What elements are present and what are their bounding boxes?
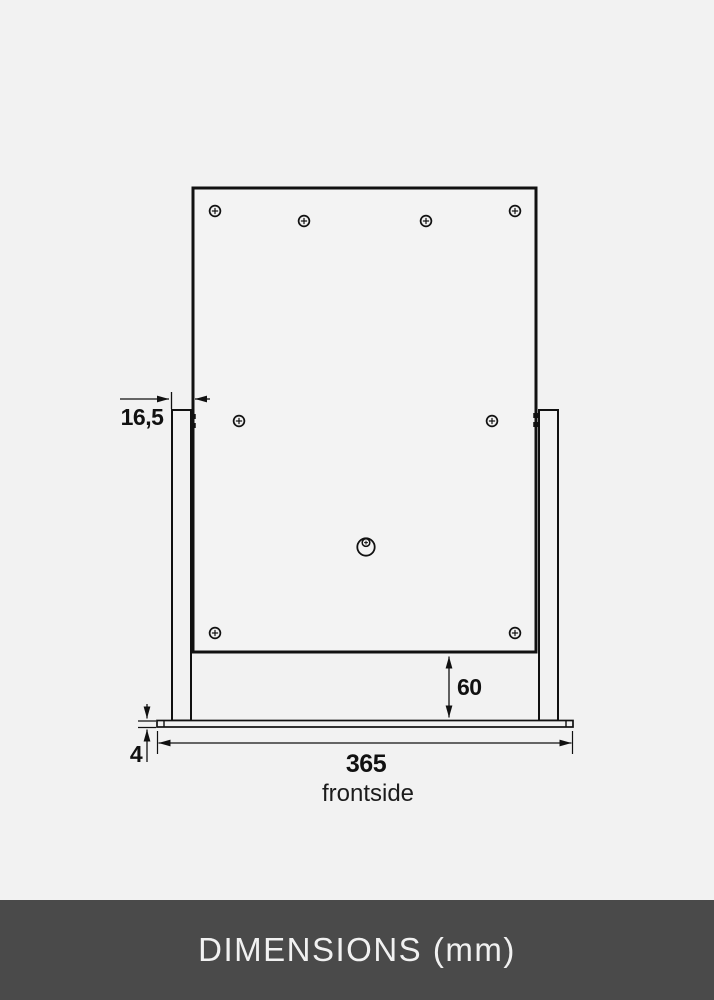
dimension-base-thickness: 4 bbox=[130, 704, 156, 767]
left-support-post bbox=[172, 410, 191, 721]
frontside-label: frontside bbox=[322, 780, 414, 807]
drawing-canvas: 16,5 60 4 365 frontside bbox=[0, 0, 714, 900]
dimension-base-width: 365 bbox=[158, 731, 573, 778]
dimensions-footer: DIMENSIONS (mm) bbox=[0, 900, 714, 1000]
base-plate bbox=[157, 721, 573, 728]
right-support-post bbox=[539, 410, 558, 721]
technical-drawing-page: 16,5 60 4 365 frontside DIMENSIONS (mm) bbox=[0, 0, 714, 1000]
dimension-panel-base-gap: 60 bbox=[449, 657, 482, 718]
footer-title: DIMENSIONS (mm) bbox=[198, 931, 516, 969]
dim-4-label: 4 bbox=[130, 741, 143, 767]
dim-365-label: 365 bbox=[346, 750, 387, 778]
dim-16-5-label: 16,5 bbox=[121, 404, 164, 430]
dim-60-label: 60 bbox=[457, 674, 482, 700]
